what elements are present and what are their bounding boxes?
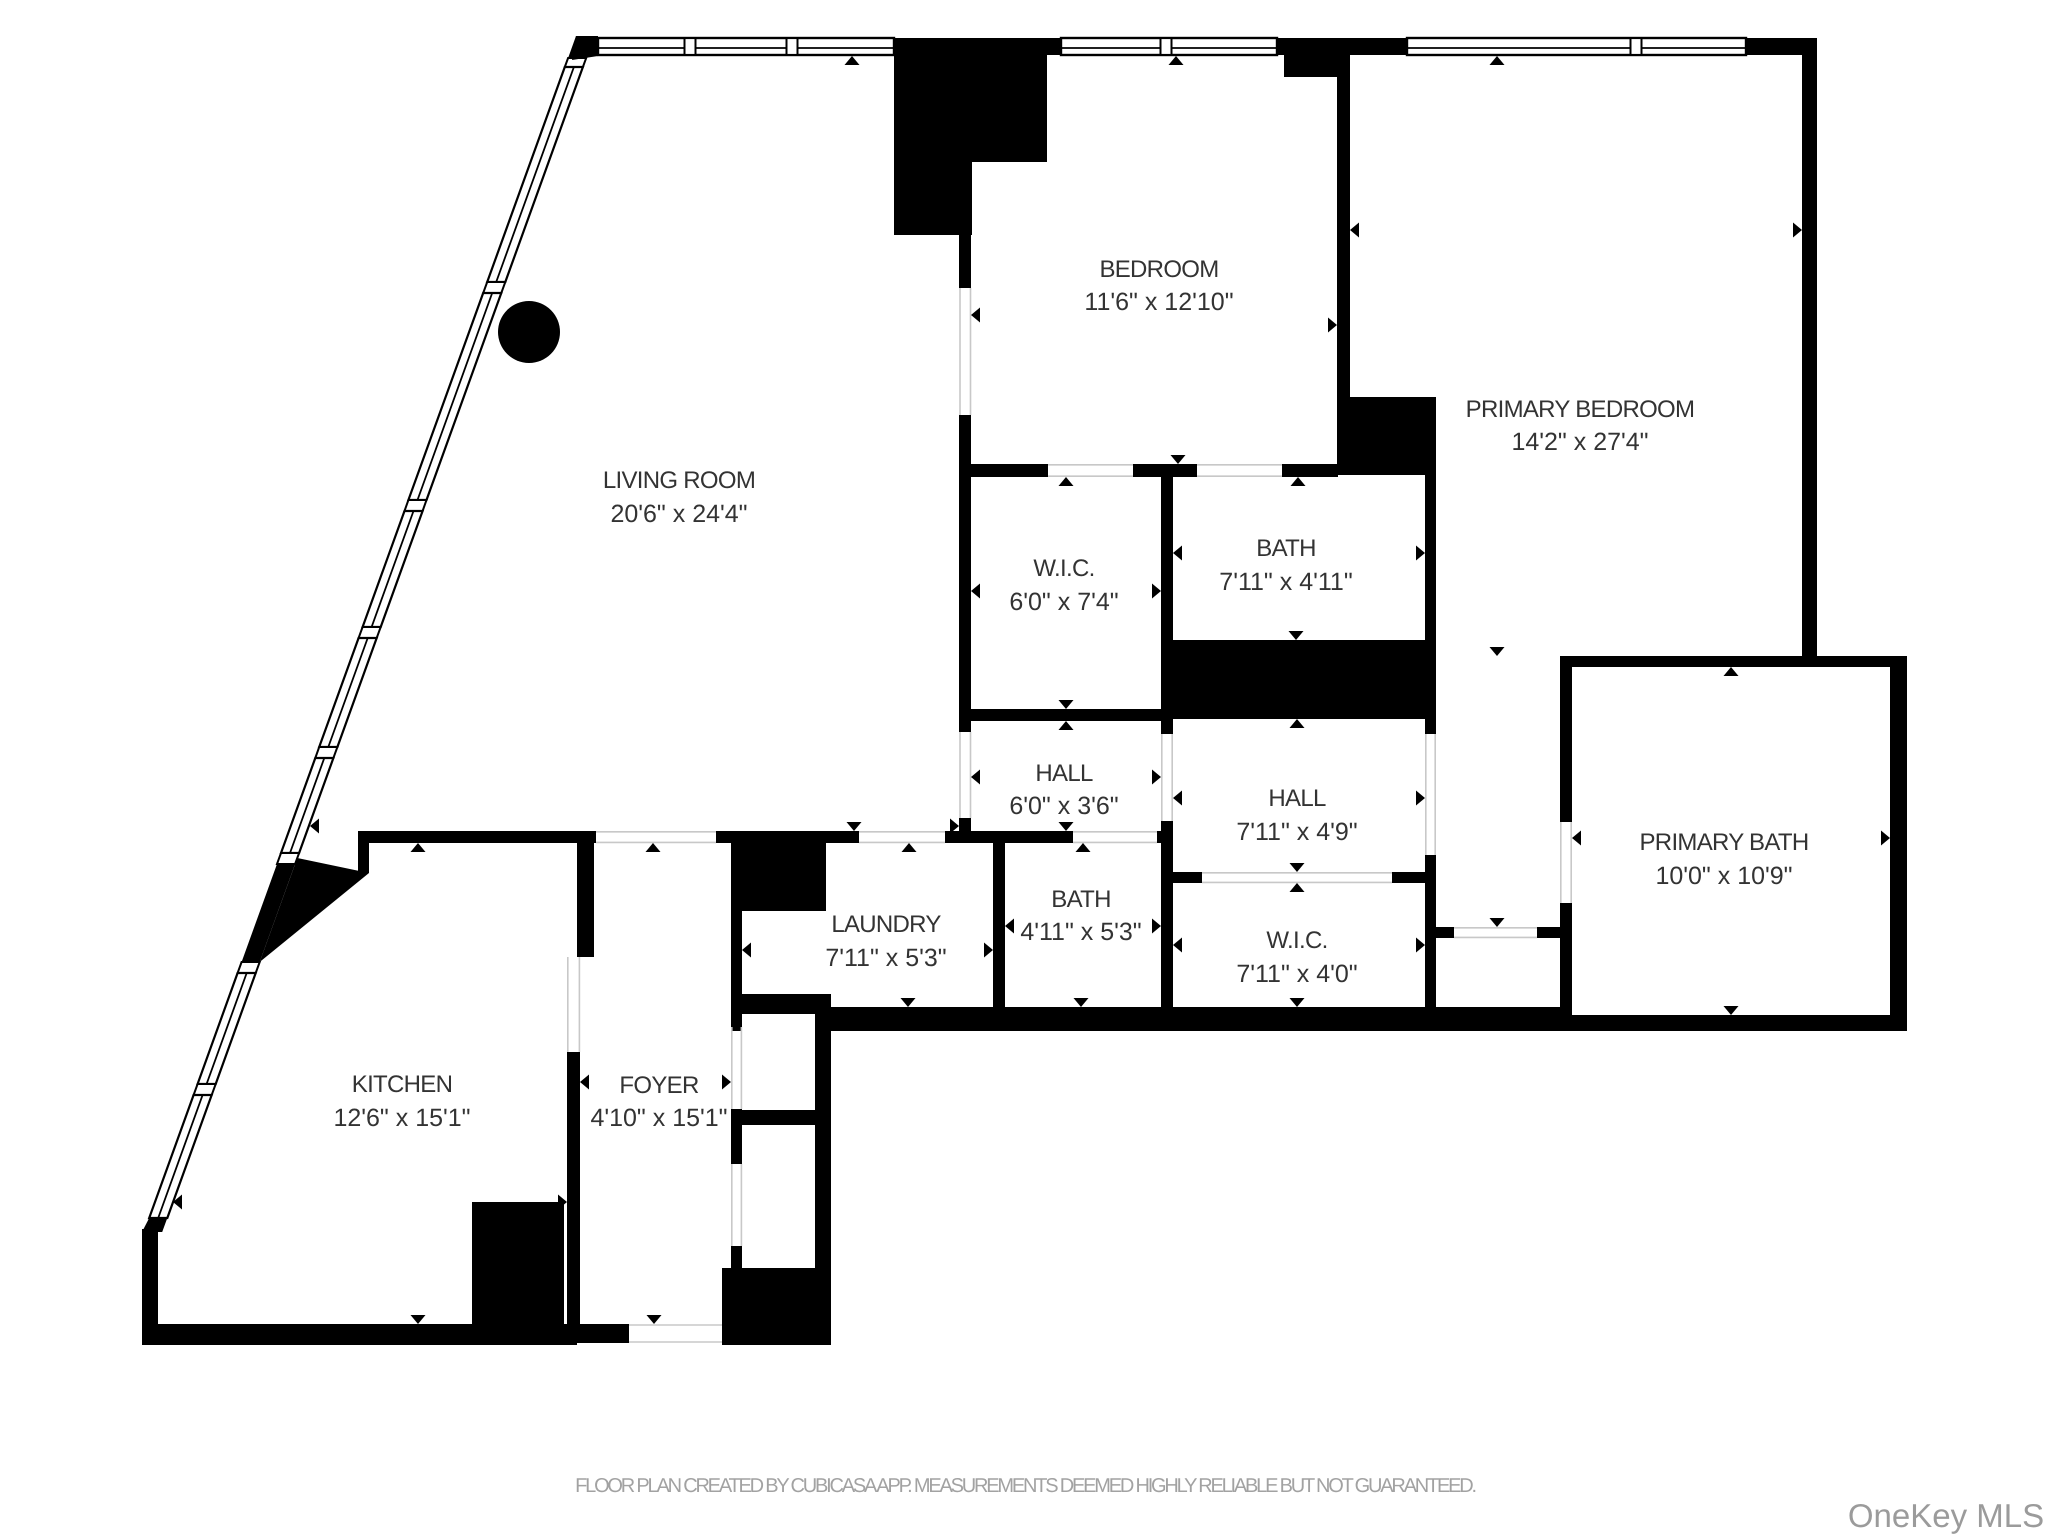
svg-text:7'11" x 5'3": 7'11" x 5'3" <box>825 944 946 972</box>
svg-text:11'6" x 12'10": 11'6" x 12'10" <box>1084 288 1233 316</box>
svg-text:4'11" x 5'3": 4'11" x 5'3" <box>1020 918 1141 946</box>
svg-text:LIVING ROOM: LIVING ROOM <box>603 467 755 494</box>
svg-text:LAUNDRY: LAUNDRY <box>831 911 941 938</box>
svg-text:12'6" x 15'1": 12'6" x 15'1" <box>333 1104 470 1132</box>
svg-text:OneKey MLS: OneKey MLS <box>1848 1497 2044 1534</box>
svg-text:20'6" x 24'4": 20'6" x 24'4" <box>610 500 747 528</box>
svg-text:HALL: HALL <box>1268 785 1326 812</box>
svg-text:6'0" x 7'4": 6'0" x 7'4" <box>1009 588 1118 616</box>
svg-text:7'11" x 4'9": 7'11" x 4'9" <box>1236 818 1357 846</box>
svg-text:6'0" x 3'6": 6'0" x 3'6" <box>1009 792 1118 820</box>
svg-text:14'2" x 27'4": 14'2" x 27'4" <box>1511 428 1648 456</box>
svg-text:PRIMARY BATH: PRIMARY BATH <box>1640 829 1809 856</box>
svg-text:W.I.C.: W.I.C. <box>1266 927 1327 954</box>
svg-text:KITCHEN: KITCHEN <box>352 1071 452 1098</box>
svg-text:7'11" x 4'11": 7'11" x 4'11" <box>1219 568 1352 596</box>
svg-text:PRIMARY BEDROOM: PRIMARY BEDROOM <box>1466 396 1695 423</box>
svg-text:4'10" x 15'1": 4'10" x 15'1" <box>590 1104 727 1132</box>
svg-text:W.I.C.: W.I.C. <box>1033 555 1094 582</box>
svg-text:FLOOR PLAN CREATED BY CUBICASA: FLOOR PLAN CREATED BY CUBICASA APP. MEAS… <box>575 1475 1475 1497</box>
svg-text:BATH: BATH <box>1256 535 1315 562</box>
svg-text:7'11" x 4'0": 7'11" x 4'0" <box>1236 960 1357 988</box>
svg-text:FOYER: FOYER <box>619 1072 699 1099</box>
svg-text:HALL: HALL <box>1035 760 1093 787</box>
svg-text:10'0" x 10'9": 10'0" x 10'9" <box>1655 862 1792 890</box>
svg-text:BEDROOM: BEDROOM <box>1099 256 1218 283</box>
svg-text:BATH: BATH <box>1051 886 1110 913</box>
